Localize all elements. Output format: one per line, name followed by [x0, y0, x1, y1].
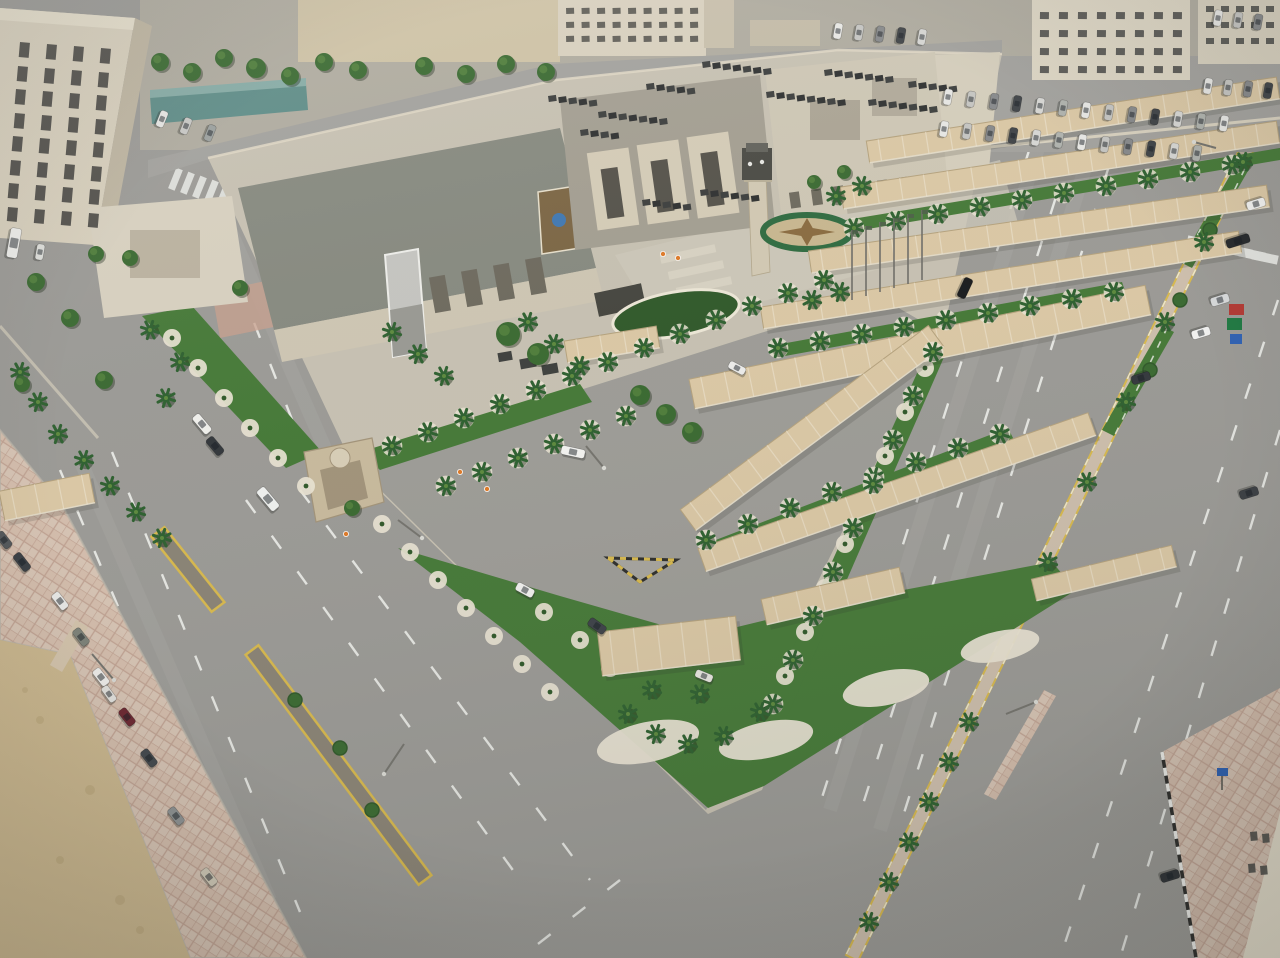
vignette-overlay [0, 0, 1280, 958]
aerial-drone-photo [0, 0, 1280, 958]
scene-canvas [0, 0, 1280, 958]
